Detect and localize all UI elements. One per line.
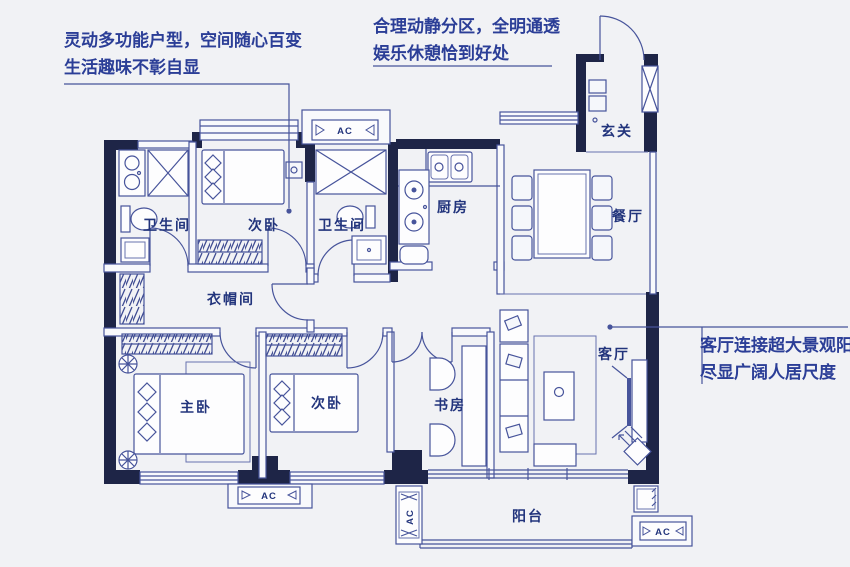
floorplan-drawing: AC AC AC AC 玄关 卫生间 次卧 卫生间 厨房: [0, 0, 850, 567]
room-label-living: 客厅: [597, 346, 630, 362]
annotation-text: 尽显广阔人居尺度: [700, 362, 837, 382]
room-label-bath2: 卫生间: [318, 217, 366, 233]
bedroom2-door: [347, 332, 383, 368]
balcony-ac-left: AC: [396, 486, 422, 544]
room-label-kitchen: 厨房: [437, 199, 469, 215]
floorplan-page: AC AC AC AC 玄关 卫生间 次卧 卫生间 厨房: [0, 0, 850, 567]
bath1-door: [150, 228, 188, 266]
bedroom2-window: [290, 472, 384, 484]
ac-ledge-bottom: AC: [228, 484, 312, 508]
chair-icon: [430, 358, 455, 390]
ac-ledge-top: AC: [302, 110, 390, 144]
room-label-bath1: 卫生间: [143, 217, 191, 233]
downlight-icon: [119, 451, 137, 469]
room-label-dining: 餐厅: [611, 208, 644, 224]
room-label-bedroom1: 次卧: [248, 217, 280, 233]
room-label-cloakroom: 衣帽间: [207, 291, 255, 307]
entry-door: [600, 16, 644, 60]
living-furniture: [500, 310, 651, 466]
annotation-text: 合理动静分区，全明通透: [373, 16, 561, 36]
master-window: [140, 472, 238, 484]
room-label-balcony: 阳台: [512, 508, 544, 524]
annotation-text: 娱乐休憩恰到好处: [373, 43, 510, 63]
master-door: [220, 332, 256, 368]
chair-icon: [430, 424, 455, 456]
annotation-text: 客厅连接超大景观阳台: [699, 335, 850, 355]
annotation-text: 生活趣味不彰自显: [64, 57, 200, 77]
bedroom2-furniture: [266, 334, 358, 432]
room-label-bedroom2: 次卧: [311, 395, 343, 411]
ac-label-balcony-left: AC: [405, 509, 416, 525]
ac-label-bottom: AC: [261, 491, 277, 502]
bedroom1-bay-window: [200, 120, 298, 140]
downlight-icon: [119, 355, 137, 373]
ac-label-top: AC: [337, 126, 353, 137]
water-heater-icon: [634, 486, 658, 512]
bath1-fixtures: [119, 150, 188, 262]
shower-icon: [316, 150, 386, 194]
dining-north-window: [500, 112, 578, 124]
duct-shaft: [642, 66, 658, 112]
tv-cabinet-icon: [612, 360, 647, 442]
balcony-sliding-door: [428, 468, 628, 480]
room-label-entry: 玄关: [601, 123, 633, 139]
ac-label-balcony-right: AC: [655, 527, 671, 538]
study-double-door: [392, 332, 452, 362]
coffee-table-icon: [544, 372, 574, 420]
bedroom1-door: [268, 228, 306, 266]
balcony-ac-right: AC: [632, 516, 692, 546]
closet-icon: [120, 274, 144, 324]
kitchen-sink-icon: [428, 152, 472, 182]
bedroom1-furniture: [198, 150, 302, 264]
shower-icon: [148, 150, 188, 196]
room-label-master: 主卧: [180, 399, 212, 415]
balcony-railing: [420, 540, 632, 548]
bath2-door: [318, 240, 354, 276]
room-label-study: 书房: [434, 397, 466, 413]
bath2-fixtures: [316, 150, 386, 264]
leader-dot: [286, 208, 291, 213]
balcony-fixtures: AC AC: [396, 486, 692, 546]
annotation-text: 灵动多功能户型，空间随心百变: [64, 30, 302, 50]
cloakroom-door: [272, 284, 308, 320]
annotation-top-center: 合理动静分区，全明通透 娱乐休憩恰到好处: [373, 16, 561, 66]
stove-icon: [399, 170, 429, 244]
dining-furniture: [512, 170, 612, 260]
cloakroom-furniture: [120, 274, 144, 324]
